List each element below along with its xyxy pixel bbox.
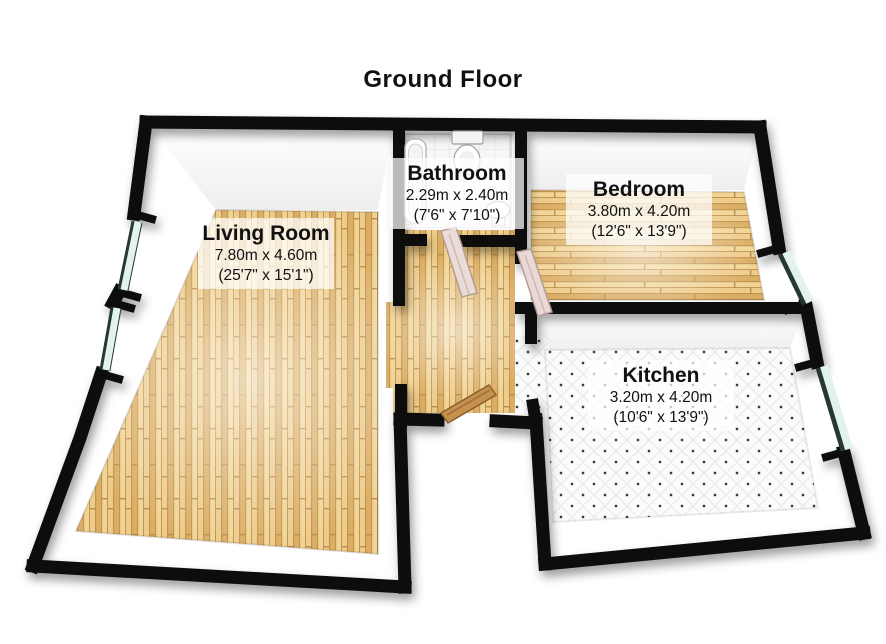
living-room-metric: 7.80m x 4.60m	[202, 246, 330, 266]
floor-plan-svg	[0, 0, 886, 644]
bathroom-label: Bathroom 2.29m x 2.40m (7'6" x 7'10")	[390, 158, 524, 229]
bathroom-imperial: (7'6" x 7'10")	[394, 206, 520, 226]
kitchen-metric: 3.20m x 4.20m	[592, 388, 730, 408]
floor-plan-page: Ground Floor	[0, 0, 886, 644]
bathroom-name: Bathroom	[394, 161, 520, 186]
living-room-imperial: (25'7" x 15'1")	[202, 266, 330, 286]
bedroom-label: Bedroom 3.80m x 4.20m (12'6" x 13'9")	[566, 174, 712, 245]
bathroom-metric: 2.29m x 2.40m	[394, 186, 520, 206]
living-room-label: Living Room 7.80m x 4.60m (25'7" x 15'1"…	[198, 218, 334, 289]
bedroom-metric: 3.80m x 4.20m	[570, 202, 708, 222]
bedroom-imperial: (12'6" x 13'9")	[570, 222, 708, 242]
kitchen-imperial: (10'6" x 13'9")	[592, 408, 730, 428]
living-room-name: Living Room	[202, 221, 330, 246]
bedroom-name: Bedroom	[570, 177, 708, 202]
kitchen-label: Kitchen 3.20m x 4.20m (10'6" x 13'9")	[588, 360, 734, 431]
kitchen-name: Kitchen	[592, 363, 730, 388]
